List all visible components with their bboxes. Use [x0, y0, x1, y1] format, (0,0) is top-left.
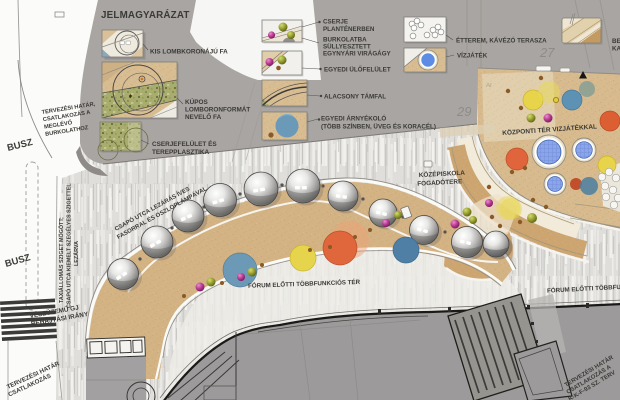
svg-text:KÚPOS: KÚPOS: [185, 97, 208, 106]
svg-text:LOMBORONFORMÁT: LOMBORONFORMÁT: [185, 105, 250, 114]
svg-text:EGYEDI ÁRNYÉKOLÓ: EGYEDI ÁRNYÉKOLÓ: [321, 115, 386, 123]
svg-text:KIS LOMBKORONÁJÚ FA: KIS LOMBKORONÁJÚ FA: [150, 47, 228, 56]
svg-text:EGYEDI ÜLŐFELÜLET: EGYEDI ÜLŐFELÜLET: [324, 67, 391, 74]
svg-text:BURKOLATBA: BURKOLATBA: [323, 37, 367, 44]
svg-text:ÉTTEREM, KÁVÉZÓ TERASZA: ÉTTEREM, KÁVÉZÓ TERASZA: [456, 37, 547, 45]
svg-text:Al: Al: [485, 83, 492, 89]
svg-text:CSERJEFELÜLET ÉS: CSERJEFELÜLET ÉS: [152, 139, 217, 148]
svg-text:TAXIÁLLOMÁS SZIGET MÖGÖTT;: TAXIÁLLOMÁS SZIGET MÖGÖTT;: [58, 217, 65, 303]
svg-text:EGYNYÁRI VIRÁGÁGY: EGYNYÁRI VIRÁGÁGY: [323, 51, 392, 58]
svg-text:29: 29: [456, 104, 471, 119]
svg-text:KAVICS: KAVICS: [612, 46, 620, 53]
svg-text:(TÖBB SZÍNBEN, ÜVEG ÉS KORACÉL: (TÖBB SZÍNBEN, ÜVEG ÉS KORACÉL): [321, 123, 436, 131]
svg-text:SÜLLYESZTETT: SÜLLYESZTETT: [323, 44, 371, 51]
svg-text:BETON: BETON: [612, 38, 620, 45]
svg-text:ALACSONY TÁMFAL: ALACSONY TÁMFAL: [324, 94, 386, 101]
svg-text:CSERJE: CSERJE: [323, 19, 348, 26]
svg-text:27: 27: [539, 45, 555, 60]
svg-text:PLANTÉNERBEN: PLANTÉNERBEN: [323, 25, 375, 33]
svg-text:LEZÁRVA: LEZÁRVA: [73, 241, 80, 266]
svg-text:JELMAGYARÁZAT: JELMAGYARÁZAT: [101, 9, 190, 21]
svg-text:NEVELŐ FA: NEVELŐ FA: [185, 112, 222, 121]
svg-text:TEREPPLASZTIKA: TEREPPLASZTIKA: [152, 149, 210, 156]
svg-text:VÍZJÁTÉK: VÍZJÁTÉK: [457, 52, 488, 60]
svg-text:CSAPÓ UTCA KIEMELT SZEGÉLYES S: CSAPÓ UTCA KIEMELT SZEGÉLYES SZIGETTEL: [65, 183, 73, 308]
